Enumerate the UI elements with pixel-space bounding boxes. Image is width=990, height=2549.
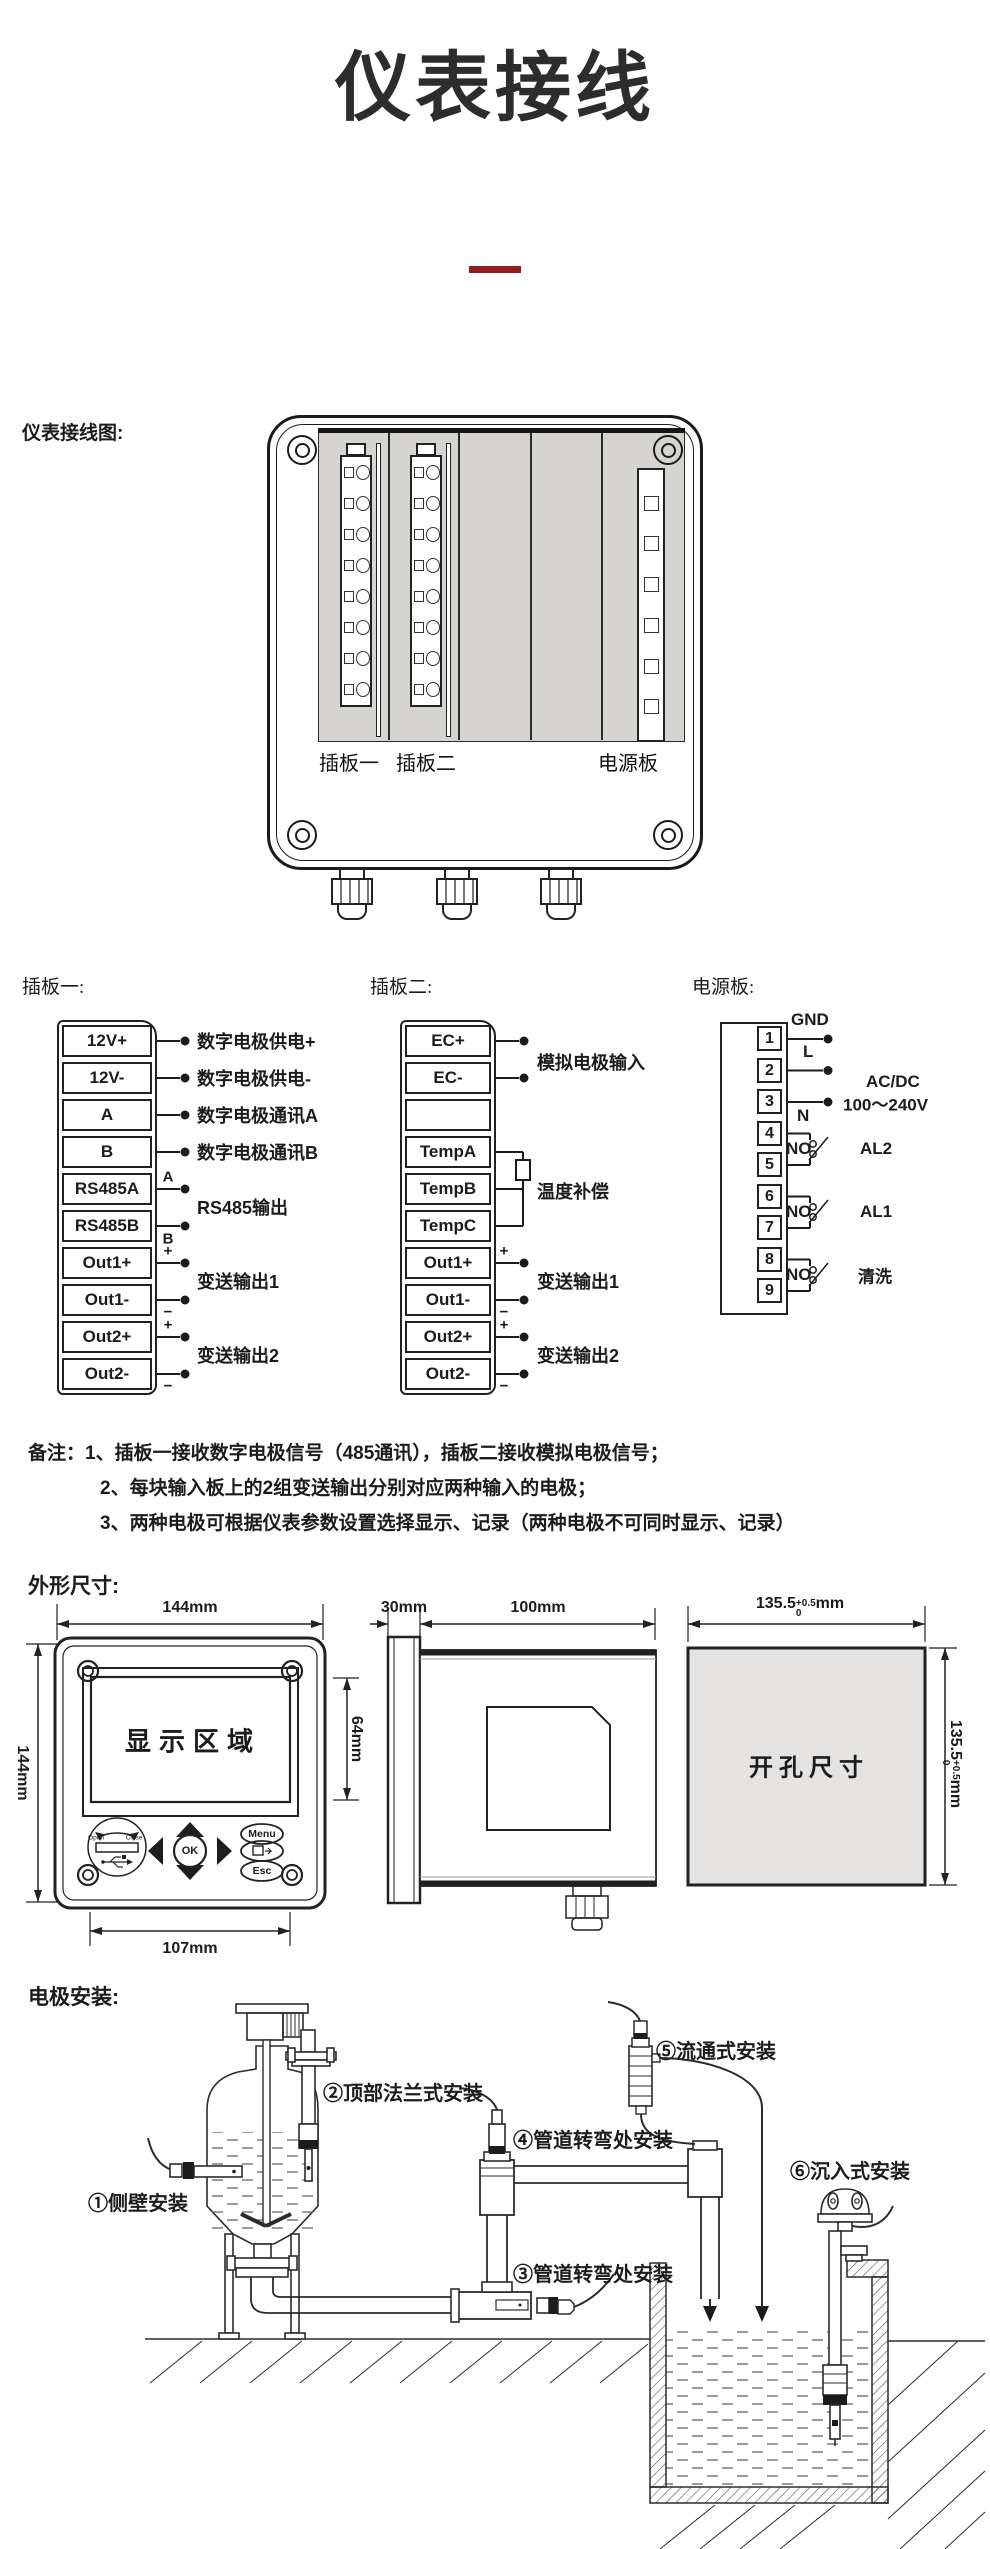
al1-label: AL1 [860,1202,892,1222]
terminal-cell: Out2+ [405,1321,491,1353]
terminal-number: 5 [757,1152,782,1177]
page-title: 仪表接线 [0,26,990,136]
side-depth-dim: 100mm [510,1599,565,1617]
cable-gland [435,868,479,920]
terminal-number: 1 [757,1026,782,1051]
installation-drawing: ①侧壁安装 ②顶部法兰式安装 ③管道转弯处安装 ④管道转弯处安装 ⑤流通式安装 … [0,2000,990,2549]
wire-mark-plus: + [164,1243,173,1260]
corner-screw-icon [287,435,317,465]
board1-heading: 插板一: [22,972,84,999]
group-label: 变送输出1 [537,1268,619,1294]
acdc-range-label: 100～240V [843,1091,928,1116]
terminal-number: 8 [757,1247,782,1272]
install-label-top-flange: ②顶部法兰式安装 [323,2081,483,2105]
terminal-cell: Out1- [62,1284,152,1316]
terminal-number: 6 [757,1184,782,1209]
card-cage-panel [318,428,685,742]
card-edge [446,443,451,737]
clean-label: 清洗 [858,1263,892,1288]
cable-gland [539,868,583,920]
cutout-width-dim: 135.5+0.50mm [756,1595,844,1619]
open-label: Open [88,1835,104,1842]
terminal-cell: EC+ [405,1025,491,1057]
wire-mark-minus: − [164,1378,173,1395]
wire-label: 数字电极供电- [197,1065,311,1091]
slot-divider [601,433,603,740]
wiring-diagram-heading: 仪表接线图: [22,418,123,445]
install-label-pipe-bend-low: ③管道转弯处安装 [513,2262,673,2286]
slot-divider [530,433,532,740]
manual-page: 仪表接线 仪表接线图: [0,0,990,2549]
corner-screw-icon [287,820,317,850]
terminal-cell: RS485A [62,1173,152,1205]
group-label: RS485输出 [197,1194,288,1220]
board1-terminal-table: 12V+ 12V- A B RS485A RS485B Out1+ Out1- … [57,1020,157,1395]
wire-label: 数字电极通讯B [197,1139,318,1165]
wire-mark-plus: + [500,1243,509,1260]
cable-gland [330,868,374,920]
terminal-cell: Out2- [405,1358,491,1390]
corner-screw-icon [653,435,683,465]
terminal-strip-board2 [410,455,442,707]
side-bezel-dim: 30mm [381,1599,427,1617]
cutout-label: 开孔尺寸 [749,1748,869,1783]
note-line-3: 3、两种电极可根据仪表参数设置选择显示、记录（两种电极不可同时显示、记录） [100,1508,795,1535]
terminal-cell: 12V- [62,1062,152,1094]
terminal-strip-power [637,468,665,742]
wire-mark-plus: + [500,1317,509,1334]
terminal-cell [405,1099,491,1131]
note-line-1: 备注：1、插板一接收数字电极信号（485通讯），插板二接收模拟电极信号； [28,1438,669,1465]
note-prefix: 备注： [28,1443,85,1464]
power-heading: 电源板: [692,972,754,999]
slot-divider [458,433,460,740]
install-label-submersion: ⑥沉入式安装 [790,2159,910,2183]
menu-button-label: Menu [248,1828,275,1840]
install-label-flow-through: ⑤流通式安装 [656,2039,776,2063]
display-height-dim: 64mm [347,1716,365,1762]
ok-button-label: OK [182,1845,199,1857]
terminal-strip-board1 [340,455,372,707]
board2-terminal-table: EC+ EC- TempA TempB TempC Out1+ Out1- Ou… [400,1020,496,1395]
wire-label: 温度补偿 [537,1178,609,1204]
terminal-cell: A [62,1099,152,1131]
terminal-cell: RS485B [62,1210,152,1242]
terminal-cell: 12V+ [62,1025,152,1057]
install-label-pipe-bend-high: ④管道转弯处安装 [513,2128,673,2152]
terminal-number: 7 [757,1215,782,1240]
front-height-dim: 144mm [13,1745,31,1800]
terminal-cell: TempC [405,1210,491,1242]
board2-heading: 插板二: [370,972,432,999]
terminal-number: 9 [757,1278,782,1303]
wire-mark-a: A [163,1169,174,1186]
wire-label: 模拟电极输入 [537,1049,645,1075]
wire-label: 数字电极供电+ [197,1028,316,1054]
instrument-back-figure: 插板一 插板二 电源板 [267,415,703,927]
terminal-cell: TempA [405,1136,491,1168]
wire-label: 数字电极通讯A [197,1102,318,1128]
slot-divider [388,433,390,740]
cutout-height-dim: 135.5+0.50mm [940,1720,964,1808]
terminal-cell: Out1+ [405,1247,491,1279]
terminal-cell: EC- [405,1062,491,1094]
close-label: Close [126,1835,143,1842]
wire-mark-minus: − [500,1378,509,1395]
terminal-number: 4 [757,1121,782,1146]
front-width-dim: 144mm [162,1599,217,1617]
al2-label: AL2 [860,1139,892,1159]
front-mount-dim: 107mm [162,1940,217,1958]
no-contact-label: NO [786,1265,812,1285]
terminal-cell: Out1- [405,1284,491,1316]
wire-mark-plus: + [164,1317,173,1334]
terminal-cell: B [62,1136,152,1168]
note-item: 1、插板一接收数字电极信号（485通讯），插板二接收模拟电极信号； [85,1443,669,1464]
card-edge [376,443,381,737]
terminal-cell: Out2- [62,1358,152,1390]
terminal-number: 2 [757,1058,782,1083]
note-line-2: 2、每块输入板上的2组变送输出分别对应两种输入的电极； [100,1473,596,1500]
acdc-label: AC/DC [866,1072,920,1092]
line-label: L [803,1042,813,1062]
no-contact-label: NO [786,1139,812,1159]
group-label: 变送输出2 [537,1342,619,1368]
display-area-label: 显示区域 [125,1722,261,1759]
card-cage-top-edge [318,428,685,433]
terminal-cell: Out2+ [62,1321,152,1353]
terminal-number: 3 [757,1089,782,1114]
no-contact-label: NO [786,1202,812,1222]
corner-screw-icon [653,820,683,850]
group-label: 变送输出1 [197,1268,279,1294]
terminal-cell: Out1+ [62,1247,152,1279]
power-slot-label: 电源板 [580,747,676,776]
group-label: 变送输出2 [197,1342,279,1368]
terminal-cell: TempB [405,1173,491,1205]
board2-slot-label: 插板二 [378,747,474,776]
neutral-label: N [797,1106,809,1126]
install-label-side-wall: ①侧壁安装 [88,2191,188,2215]
red-divider [469,266,521,273]
esc-button-label: Esc [253,1865,272,1877]
gnd-label: GND [791,1010,829,1030]
